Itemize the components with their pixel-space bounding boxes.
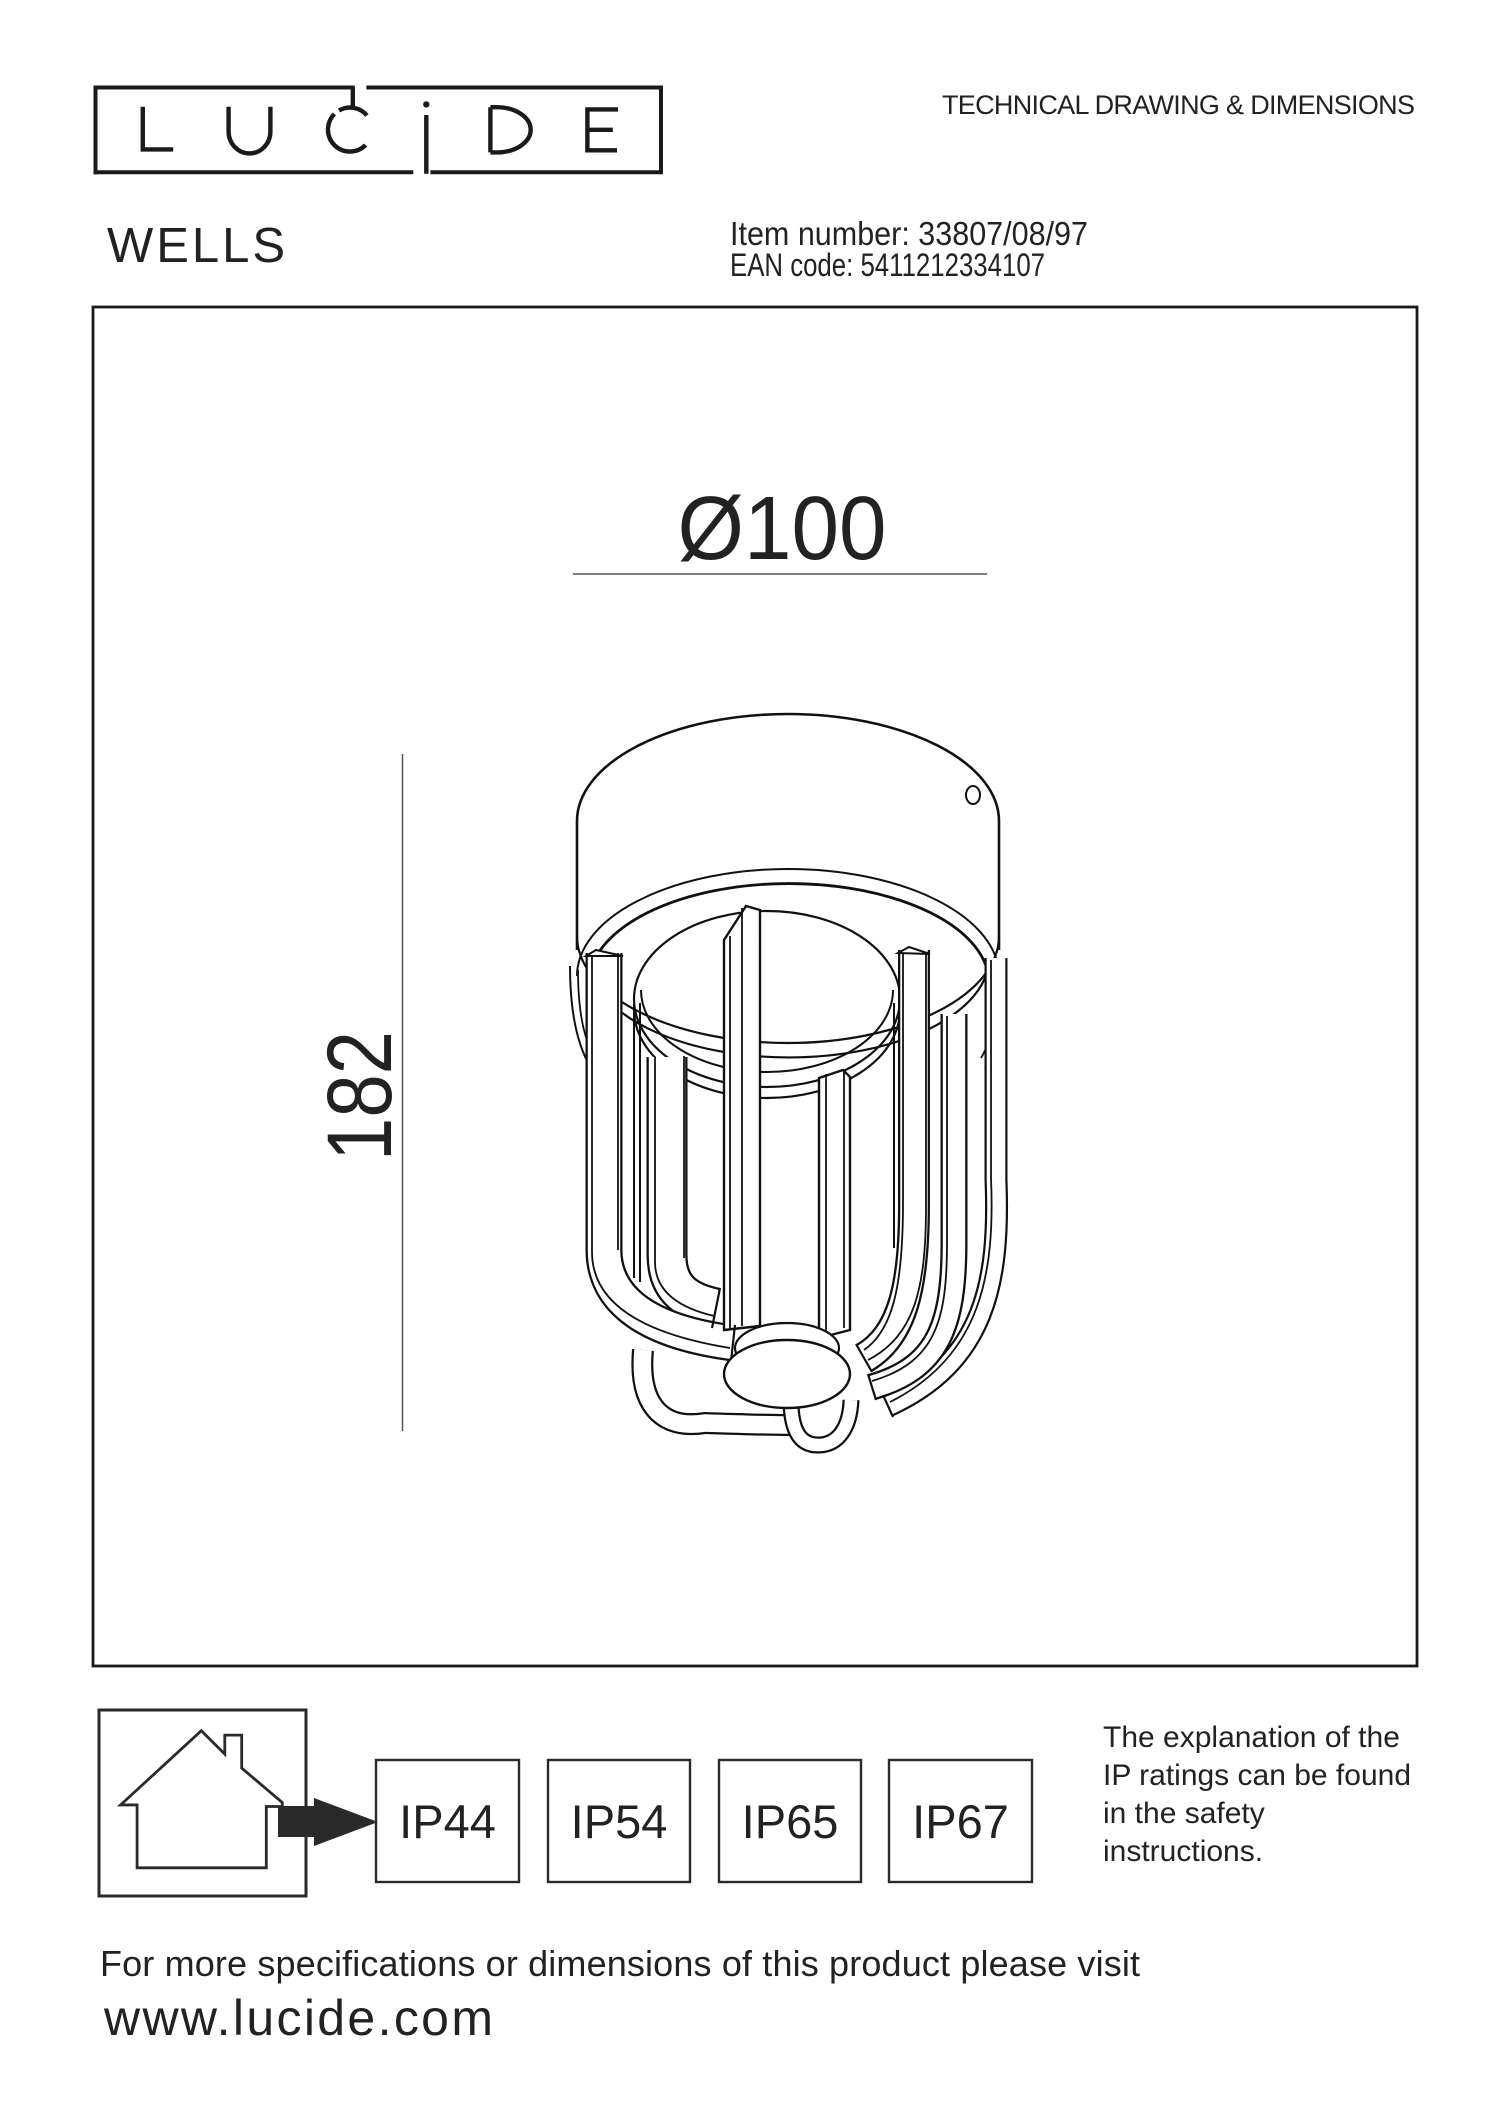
svg-text:EAN code: 5411212334107: EAN code: 5411212334107	[730, 247, 1045, 283]
svg-text:IP44: IP44	[399, 1795, 496, 1848]
svg-text:IP ratings can be found: IP ratings can be found	[1103, 1759, 1411, 1792]
svg-text:WELLS: WELLS	[107, 219, 288, 273]
svg-text:www.lucide.com: www.lucide.com	[103, 1990, 493, 2046]
svg-text:182: 182	[309, 1031, 411, 1161]
svg-text:For more specifications or dim: For more specifications or dimensions of…	[100, 1943, 1140, 1984]
svg-text:TECHNICAL DRAWING & DIMENSIONS: TECHNICAL DRAWING & DIMENSIONS	[942, 90, 1415, 120]
svg-text:IP65: IP65	[742, 1795, 839, 1848]
svg-text:in the safety: in the safety	[1103, 1797, 1265, 1830]
svg-text:IP54: IP54	[571, 1795, 668, 1848]
svg-text:instructions.: instructions.	[1103, 1835, 1263, 1868]
svg-text:The explanation of the: The explanation of the	[1103, 1721, 1400, 1754]
svg-text:Ø100: Ø100	[678, 479, 887, 579]
svg-text:IP67: IP67	[912, 1795, 1009, 1848]
